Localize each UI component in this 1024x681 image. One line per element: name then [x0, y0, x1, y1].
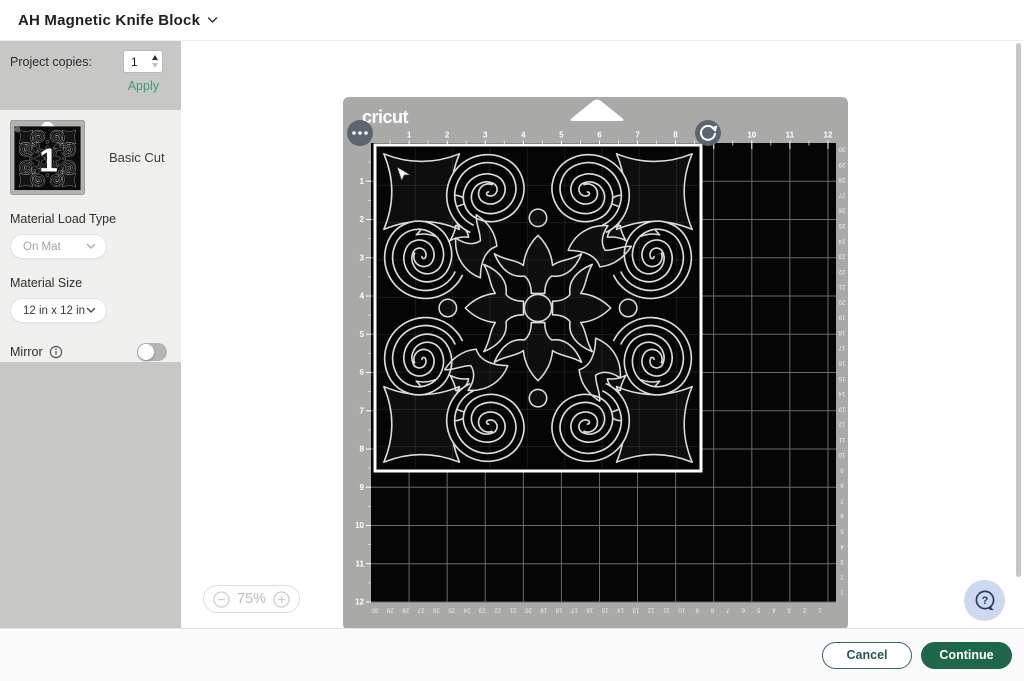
- material-load-value: On Mat: [23, 241, 61, 253]
- svg-text:22: 22: [494, 607, 501, 614]
- svg-text:10: 10: [678, 607, 685, 614]
- svg-text:5: 5: [840, 528, 844, 535]
- prepare-sidebar: Project copies: Apply 1 Basic Cut: [0, 41, 181, 628]
- svg-text:3: 3: [360, 253, 365, 262]
- mat-number-badge: 1: [39, 142, 58, 179]
- svg-text:15: 15: [838, 375, 845, 382]
- svg-text:8: 8: [840, 482, 844, 489]
- svg-text:12: 12: [647, 607, 654, 614]
- mat-preview[interactable]: cricut 123456789101112 123456789101112 3…: [343, 97, 848, 630]
- svg-text:4: 4: [521, 131, 526, 140]
- svg-text:6: 6: [360, 368, 365, 377]
- svg-text:1: 1: [818, 607, 822, 614]
- svg-text:23: 23: [838, 253, 845, 260]
- continue-button[interactable]: Continue: [921, 642, 1012, 669]
- project-copies-label: Project copies:: [10, 55, 92, 69]
- apply-button[interactable]: Apply: [10, 79, 163, 93]
- svg-text:8: 8: [710, 607, 714, 614]
- svg-text:13: 13: [632, 607, 639, 614]
- more-options-button[interactable]: [347, 120, 373, 146]
- rotate-button[interactable]: [695, 120, 721, 146]
- svg-text:4: 4: [772, 607, 776, 614]
- help-button[interactable]: ?: [964, 580, 1005, 621]
- svg-text:16: 16: [838, 359, 845, 366]
- svg-text:3: 3: [483, 131, 488, 140]
- svg-text:3: 3: [840, 558, 844, 565]
- spinner-down-icon[interactable]: [152, 63, 158, 68]
- material-load-label: Material Load Type: [10, 212, 171, 226]
- design-selection[interactable]: [375, 145, 701, 471]
- help-icon: ?: [972, 588, 998, 614]
- svg-text:9: 9: [360, 483, 365, 492]
- svg-text:25: 25: [448, 607, 455, 614]
- svg-text:21: 21: [838, 283, 845, 290]
- svg-text:16: 16: [586, 607, 593, 614]
- svg-text:11: 11: [786, 131, 795, 140]
- svg-text:21: 21: [509, 607, 516, 614]
- svg-text:2: 2: [840, 573, 844, 580]
- svg-text:13: 13: [838, 405, 845, 412]
- svg-text:19: 19: [540, 607, 547, 614]
- svg-text:1: 1: [840, 589, 844, 596]
- svg-text:10: 10: [355, 521, 364, 530]
- zoom-control: 75%: [203, 585, 300, 613]
- material-size-label: Material Size: [10, 276, 171, 290]
- svg-text:14: 14: [617, 607, 624, 614]
- svg-text:8: 8: [360, 445, 365, 454]
- svg-text:20: 20: [524, 607, 531, 614]
- mat-thumbnail[interactable]: 1: [10, 120, 85, 195]
- cancel-button[interactable]: Cancel: [822, 642, 912, 669]
- svg-text:7: 7: [840, 497, 844, 504]
- svg-text:25: 25: [838, 222, 845, 229]
- svg-text:1: 1: [407, 131, 412, 140]
- svg-text:11: 11: [356, 559, 365, 568]
- svg-text:14: 14: [838, 390, 845, 397]
- svg-text:10: 10: [838, 451, 845, 458]
- svg-text:28: 28: [402, 607, 409, 614]
- action-footer: Cancel Continue: [0, 628, 1024, 681]
- svg-text:7: 7: [726, 607, 730, 614]
- svg-text:11: 11: [663, 607, 670, 614]
- svg-text:18: 18: [555, 607, 562, 614]
- ellipsis-icon: [352, 131, 368, 135]
- svg-text:11: 11: [838, 436, 845, 443]
- svg-text:17: 17: [570, 607, 577, 614]
- cut-type-label: Basic Cut: [109, 150, 165, 165]
- svg-text:7: 7: [360, 406, 365, 415]
- chevron-down-icon: [86, 243, 96, 250]
- svg-text:30: 30: [838, 146, 845, 153]
- material-load-dropdown[interactable]: On Mat: [10, 234, 107, 259]
- zoom-out-icon[interactable]: [213, 591, 230, 608]
- svg-text:12: 12: [838, 421, 845, 428]
- chevron-down-icon[interactable]: [207, 16, 218, 24]
- project-title[interactable]: AH Magnetic Knife Block: [18, 12, 200, 29]
- svg-text:3: 3: [787, 607, 791, 614]
- more-options-mini: [14, 126, 20, 132]
- svg-text:29: 29: [838, 161, 845, 168]
- svg-text:5: 5: [559, 131, 564, 140]
- vertical-scrollbar[interactable]: [1016, 43, 1021, 577]
- svg-text:19: 19: [838, 314, 845, 321]
- chevron-down-icon: [86, 307, 96, 314]
- mirror-label: Mirror: [10, 345, 43, 359]
- svg-text:18: 18: [838, 329, 845, 336]
- svg-text:2: 2: [445, 131, 450, 140]
- svg-text:26: 26: [432, 607, 439, 614]
- svg-text:29: 29: [386, 607, 393, 614]
- material-size-value: 12 in x 12 in: [23, 305, 85, 317]
- sidebar-filler: [0, 362, 181, 628]
- svg-text:9: 9: [840, 466, 844, 473]
- svg-text:24: 24: [838, 237, 845, 244]
- svg-text:12: 12: [824, 131, 833, 140]
- svg-text:20: 20: [838, 298, 845, 305]
- svg-text:2: 2: [360, 215, 365, 224]
- svg-text:1: 1: [360, 177, 365, 186]
- svg-text:5: 5: [360, 330, 365, 339]
- svg-text:27: 27: [417, 607, 424, 614]
- svg-text:12: 12: [355, 598, 364, 607]
- svg-text:?: ?: [981, 595, 988, 607]
- mat-canvas[interactable]: cricut 123456789101112 123456789101112 3…: [181, 41, 1024, 628]
- svg-text:5: 5: [756, 607, 760, 614]
- svg-text:26: 26: [838, 207, 845, 214]
- app-header: AH Magnetic Knife Block: [0, 0, 1024, 41]
- mirror-toggle[interactable]: [137, 343, 167, 361]
- svg-text:30: 30: [371, 607, 378, 614]
- svg-text:4: 4: [360, 292, 365, 301]
- svg-text:6: 6: [840, 512, 844, 519]
- svg-text:15: 15: [601, 607, 608, 614]
- zoom-in-icon[interactable]: [273, 591, 290, 608]
- mat-settings-section: 1 Basic Cut Material Load Type On Mat Ma…: [0, 110, 181, 362]
- material-size-dropdown[interactable]: 12 in x 12 in: [10, 298, 107, 323]
- svg-text:23: 23: [478, 607, 485, 614]
- info-icon[interactable]: [49, 345, 63, 359]
- svg-text:17: 17: [838, 344, 845, 351]
- toggle-knob: [138, 344, 154, 360]
- svg-text:9: 9: [695, 607, 699, 614]
- svg-text:22: 22: [838, 268, 845, 275]
- svg-text:27: 27: [838, 191, 845, 198]
- zoom-level: 75%: [237, 591, 266, 607]
- svg-text:4: 4: [840, 543, 844, 550]
- copies-value-field[interactable]: [124, 55, 151, 69]
- svg-text:7: 7: [635, 131, 640, 140]
- project-copies-section: Project copies: Apply: [0, 41, 181, 110]
- svg-text:6: 6: [741, 607, 745, 614]
- project-copies-input[interactable]: [123, 50, 163, 73]
- svg-text:2: 2: [802, 607, 806, 614]
- spinner-up-icon[interactable]: [152, 55, 158, 60]
- svg-text:10: 10: [747, 131, 756, 140]
- svg-text:24: 24: [463, 607, 470, 614]
- svg-text:8: 8: [673, 131, 678, 140]
- svg-text:6: 6: [597, 131, 602, 140]
- svg-text:28: 28: [838, 176, 845, 183]
